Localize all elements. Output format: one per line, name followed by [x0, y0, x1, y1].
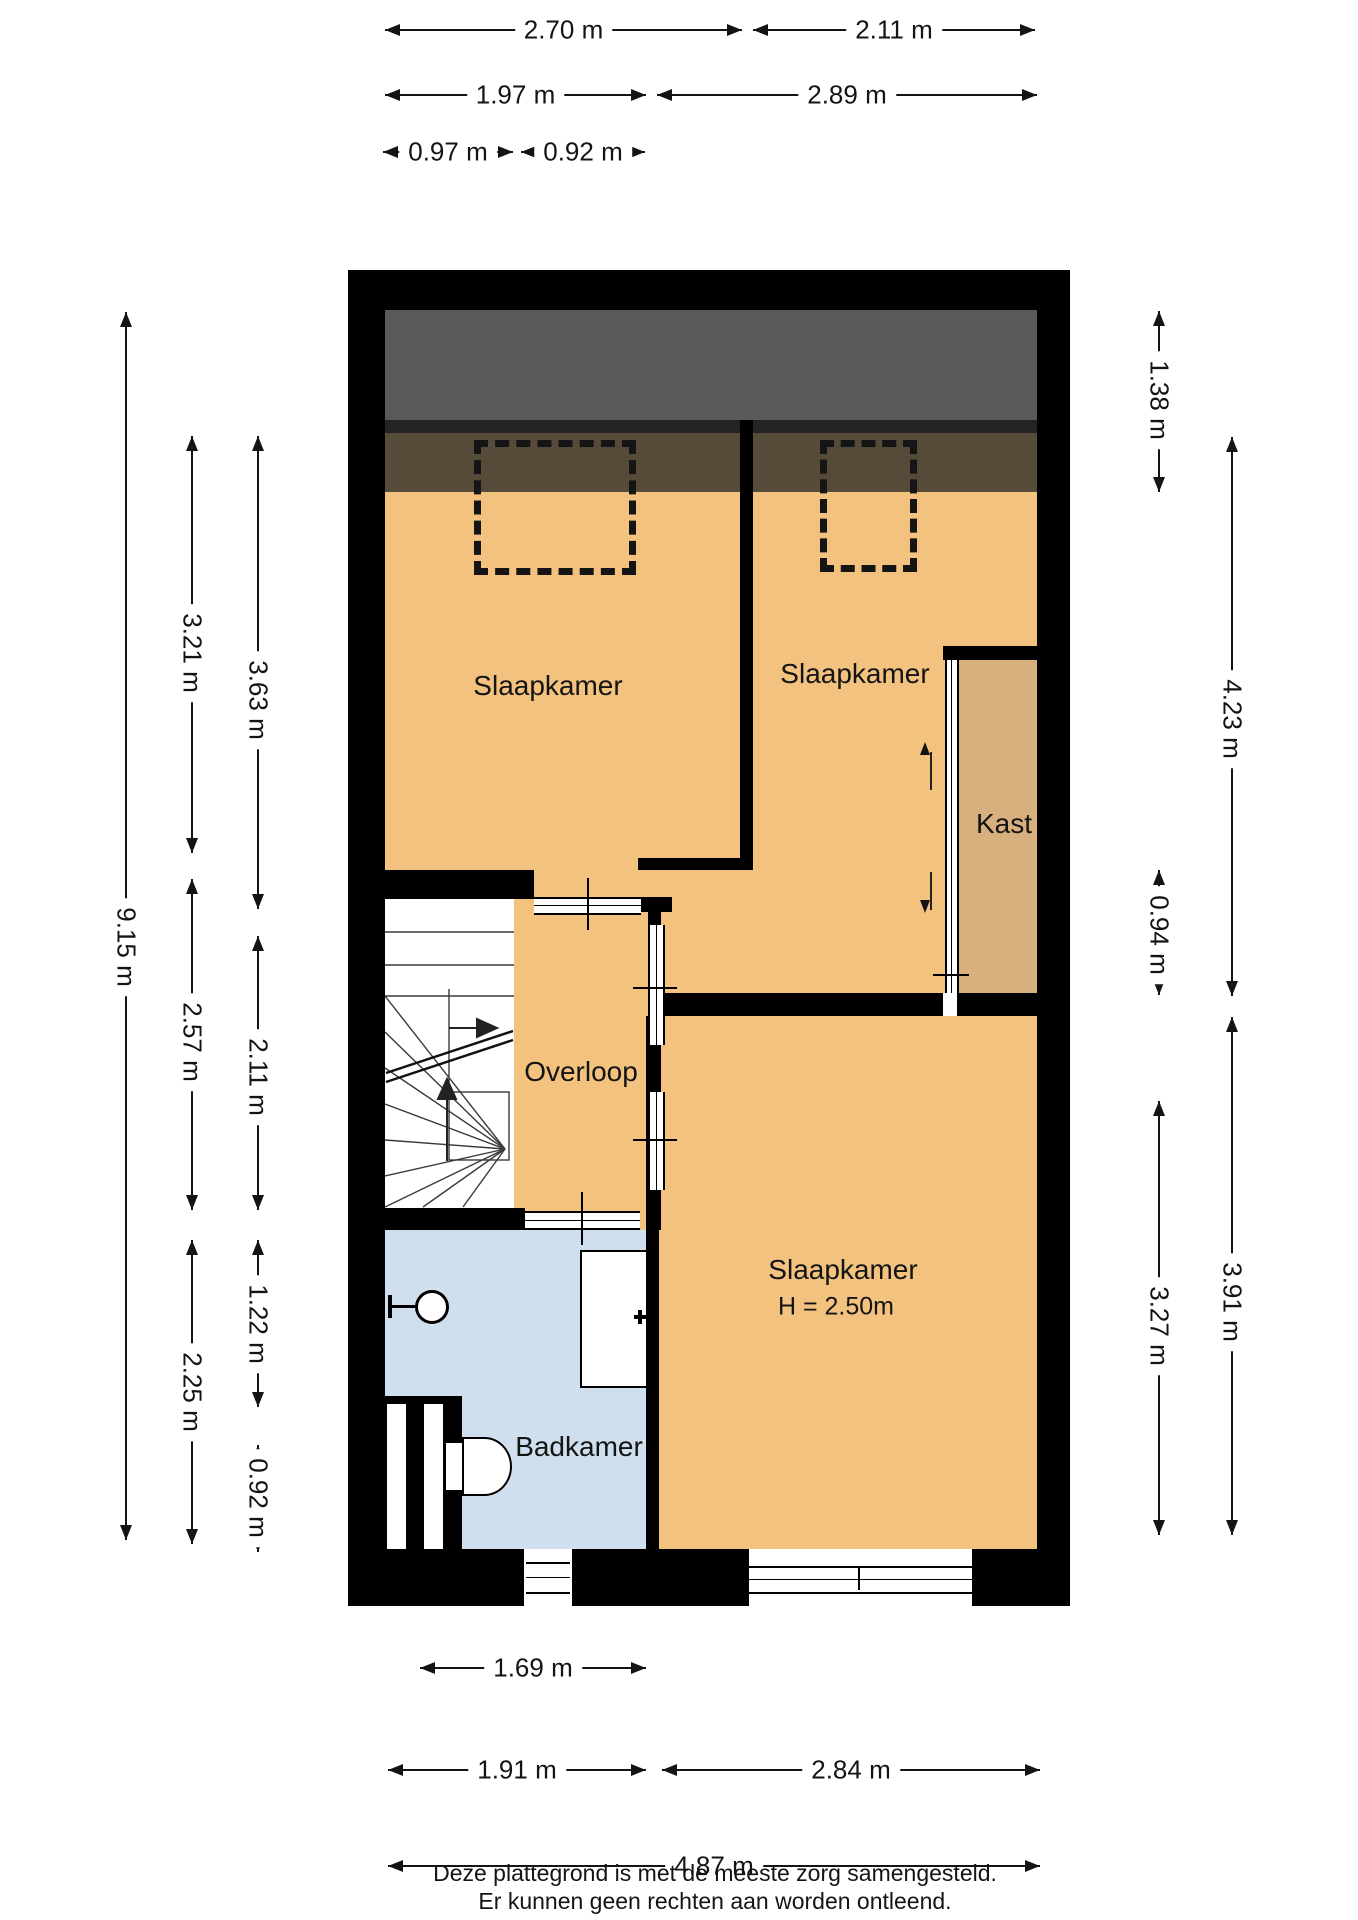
- dimension-h-1.97m: 1.97 m: [385, 81, 646, 109]
- dimension-h-2.89m: 2.89 m: [657, 81, 1037, 109]
- arrow-right-icon: [1022, 89, 1037, 101]
- toilet-cistern: [444, 1441, 464, 1492]
- dimension-label: 9.15 m: [112, 898, 139, 996]
- dimension-h-2.11m: 2.11 m: [753, 16, 1035, 44]
- wall-landing-col-a: [648, 912, 661, 925]
- dimension-h-1.91m: 1.91 m: [388, 1756, 646, 1784]
- arrow-left-icon: [420, 1662, 435, 1674]
- room-label-bedroom-3: Slaapkamer: [768, 1254, 917, 1286]
- footer-disclaimer-line1: Deze plattegrond is met de meeste zorg s…: [433, 1860, 997, 1887]
- wall-bedroom2-bedroom3: [649, 993, 1037, 1016]
- arrow-left-icon: [388, 1860, 403, 1872]
- arrow-down-icon: [1153, 477, 1165, 492]
- arrow-up-icon: [1153, 311, 1165, 326]
- room-label-closet: Kast: [976, 808, 1032, 840]
- arrow-left-icon: [657, 89, 672, 101]
- dimension-label: 3.91 m: [1218, 1253, 1245, 1351]
- landing-right-glazing-tick-1: [633, 987, 677, 989]
- dimension-h-1.69m: 1.69 m: [420, 1654, 646, 1682]
- arrow-right-icon: [727, 24, 742, 36]
- arrow-right-icon: [1025, 1764, 1040, 1776]
- dormer-1: [474, 440, 636, 575]
- dimension-label: 2.84 m: [802, 1756, 900, 1783]
- arrow-down-icon: [1226, 1520, 1238, 1535]
- washbasin-tap-icon-2: [638, 1310, 642, 1324]
- closet-front-partition: [945, 660, 959, 993]
- dimension-label: 2.89 m: [798, 81, 896, 108]
- room-label-bedroom-1: Slaapkamer: [473, 670, 622, 702]
- wall-nook-top: [638, 858, 753, 870]
- dimension-label: 0.92 m: [244, 1449, 271, 1547]
- wall-closet-top: [943, 646, 1037, 660]
- dimension-label: 0.94 m: [1145, 886, 1172, 984]
- landing-right-glazing-1: [648, 925, 665, 1045]
- bedroom3-window: [749, 1566, 972, 1594]
- arrow-left-icon: [388, 1764, 403, 1776]
- room-label-bathroom: Badkamer: [515, 1431, 643, 1463]
- footer-disclaimer-line2: Er kunnen geen rechten aan worden ontlee…: [478, 1888, 951, 1915]
- arrow-left-icon: [385, 89, 400, 101]
- dimension-v-3.27m: 3.27 m: [1145, 1101, 1173, 1535]
- arrow-right-icon: [1020, 24, 1035, 36]
- arrow-down-icon: [186, 1529, 198, 1544]
- shower-mount: [388, 1295, 392, 1318]
- arrow-right-icon: [498, 146, 513, 158]
- landing-right-glazing-2: [648, 1092, 665, 1190]
- arrow-up-icon: [186, 436, 198, 451]
- stairs: [385, 899, 514, 1208]
- arrow-up-icon: [186, 879, 198, 894]
- dimension-label: 1.91 m: [468, 1756, 566, 1783]
- dimension-v-9.15m: 9.15 m: [112, 312, 140, 1540]
- dimension-h-2.70m: 2.70 m: [385, 16, 742, 44]
- arrow-up-icon: [1153, 870, 1165, 885]
- room-label-landing: Overloop: [524, 1056, 638, 1088]
- landing-bottom-glazing-tick: [581, 1192, 583, 1245]
- wall-nook-corner: [641, 897, 672, 912]
- dimension-label: 2.11 m: [244, 1029, 271, 1125]
- arrow-up-icon: [252, 436, 264, 451]
- closet-partition-tick: [933, 974, 969, 976]
- arrow-left-icon: [383, 146, 398, 158]
- arrow-left-icon: [385, 24, 400, 36]
- arrow-down-icon: [252, 1392, 264, 1407]
- arrow-down-icon: [120, 1525, 132, 1540]
- dimension-label: 2.57 m: [178, 993, 205, 1091]
- duct-shaft-1: [387, 1404, 406, 1549]
- dimension-v-1.38m: 1.38 m: [1145, 311, 1173, 492]
- arrow-down-icon: [1226, 981, 1238, 996]
- dimension-v-3.63m: 3.63 m: [244, 436, 272, 909]
- dimension-v-4.23m: 4.23 m: [1218, 437, 1246, 996]
- arrow-up-icon: [252, 936, 264, 951]
- roof-dark-strip: [385, 420, 1037, 433]
- dimension-v-3.91m: 3.91 m: [1218, 1017, 1246, 1535]
- dimension-v-3.21m: 3.21 m: [178, 436, 206, 853]
- dimension-label: 1.22 m: [244, 1275, 271, 1373]
- arrow-down-icon: [252, 1195, 264, 1210]
- room-label-bedroom-2: Slaapkamer: [780, 658, 929, 690]
- dimension-v-2.57m: 2.57 m: [178, 879, 206, 1210]
- arrow-right-icon: [631, 1764, 646, 1776]
- dimension-v-0.92m: 0.92 m: [244, 1445, 272, 1552]
- wall-outer-left: [348, 270, 385, 1606]
- bathroom-window: [526, 1562, 570, 1594]
- dimension-label: 1.69 m: [484, 1654, 582, 1681]
- dimension-label: 3.63 m: [244, 651, 271, 749]
- slope-arrow-down: [930, 872, 932, 910]
- arrow-up-icon: [252, 1240, 264, 1255]
- arrow-up-icon: [186, 1240, 198, 1255]
- dimension-label: 0.97 m: [399, 138, 497, 165]
- bedroom3-window-divider: [858, 1566, 860, 1590]
- wall-bedroom1-bottom: [348, 870, 534, 899]
- arrow-right-icon: [1025, 1860, 1040, 1872]
- landing-top-glazing-tick: [587, 878, 589, 930]
- dimension-label: 1.38 m: [1145, 351, 1172, 449]
- wall-stairs-bottom: [348, 1208, 525, 1230]
- dimension-v-0.94m: 0.94 m: [1145, 870, 1173, 995]
- wall-outer-top: [348, 270, 1070, 310]
- wall-bedroom1-bedroom2: [740, 420, 753, 870]
- dimension-label: 4.23 m: [1218, 670, 1245, 768]
- arrow-left-icon: [662, 1764, 677, 1776]
- arrow-down-icon: [186, 838, 198, 853]
- arrow-right-icon: [630, 146, 645, 158]
- dimension-label: 1.97 m: [467, 81, 565, 108]
- arrow-right-icon: [631, 1662, 646, 1674]
- dimension-label: 0.92 m: [534, 138, 632, 165]
- arrow-up-icon: [1226, 437, 1238, 452]
- dimension-h-2.84m: 2.84 m: [662, 1756, 1040, 1784]
- dimension-v-2.11m: 2.11 m: [244, 936, 272, 1210]
- dimension-v-1.22m: 1.22 m: [244, 1240, 272, 1407]
- room-label-bedroom-3-height: H = 2.50m: [778, 1293, 894, 1322]
- arrow-down-icon: [1153, 1520, 1165, 1535]
- arrow-up-icon: [120, 312, 132, 327]
- arrow-down-icon: [252, 894, 264, 909]
- dormer-2: [820, 440, 917, 572]
- roof-flat-band: [385, 310, 1037, 420]
- wall-bedroom2-bedroom3-gap: [943, 993, 957, 1016]
- slope-arrow-up-head: [920, 742, 930, 755]
- shower-head-icon: [415, 1290, 449, 1324]
- dimension-label: 2.11 m: [846, 16, 942, 43]
- slope-arrow-up: [930, 752, 932, 790]
- slope-arrow-down-head: [920, 900, 930, 913]
- landing-right-glazing-tick-2: [633, 1139, 677, 1141]
- arrow-up-icon: [1153, 1101, 1165, 1116]
- wall-outer-right: [1037, 270, 1070, 1606]
- arrow-up-icon: [1226, 1017, 1238, 1032]
- dimension-v-2.25m: 2.25 m: [178, 1240, 206, 1544]
- floorplan-page: SlaapkamerSlaapkamerKastOverloopSlaapkam…: [0, 0, 1358, 1920]
- arrow-down-icon: [186, 1195, 198, 1210]
- dimension-label: 3.21 m: [178, 604, 205, 702]
- dimension-h-0.97m: 0.97 m: [383, 138, 513, 166]
- dimension-label: 3.27 m: [1145, 1277, 1172, 1375]
- dimension-label: 2.25 m: [178, 1343, 205, 1441]
- arrow-right-icon: [631, 89, 646, 101]
- duct-shaft-2: [424, 1404, 443, 1549]
- arrow-left-icon: [753, 24, 768, 36]
- dimension-label: 2.70 m: [515, 16, 613, 43]
- dimension-h-0.92m: 0.92 m: [521, 138, 645, 166]
